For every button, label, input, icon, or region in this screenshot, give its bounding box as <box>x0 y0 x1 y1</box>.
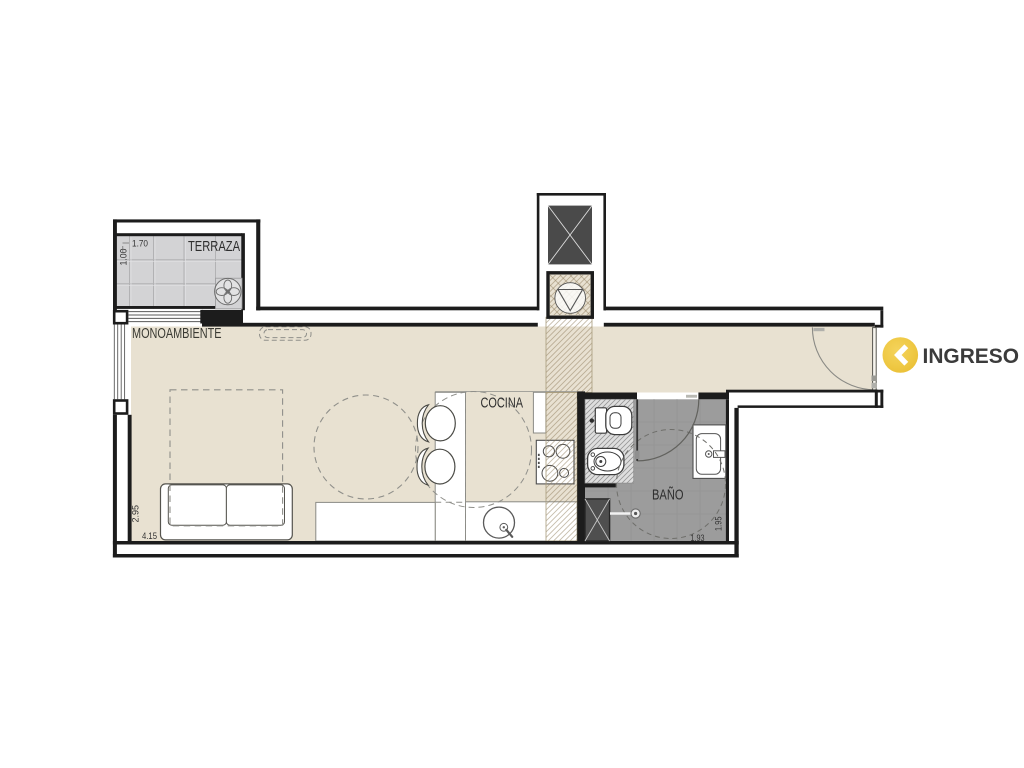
svg-text:COCINA: COCINA <box>481 395 524 411</box>
svg-text:BAÑO: BAÑO <box>652 487 684 504</box>
svg-text:1.00: 1.00 <box>119 248 129 265</box>
svg-text:1.93: 1.93 <box>691 533 705 543</box>
svg-text:MONOAMBIENTE: MONOAMBIENTE <box>132 325 222 342</box>
svg-text:1.70: 1.70 <box>132 238 148 248</box>
svg-text:1.95: 1.95 <box>713 516 723 531</box>
svg-text:2.95: 2.95 <box>131 505 141 523</box>
svg-text:TERRAZA: TERRAZA <box>188 239 240 255</box>
svg-text:INGRESO: INGRESO <box>923 344 1020 368</box>
svg-text:4.15: 4.15 <box>142 531 157 541</box>
